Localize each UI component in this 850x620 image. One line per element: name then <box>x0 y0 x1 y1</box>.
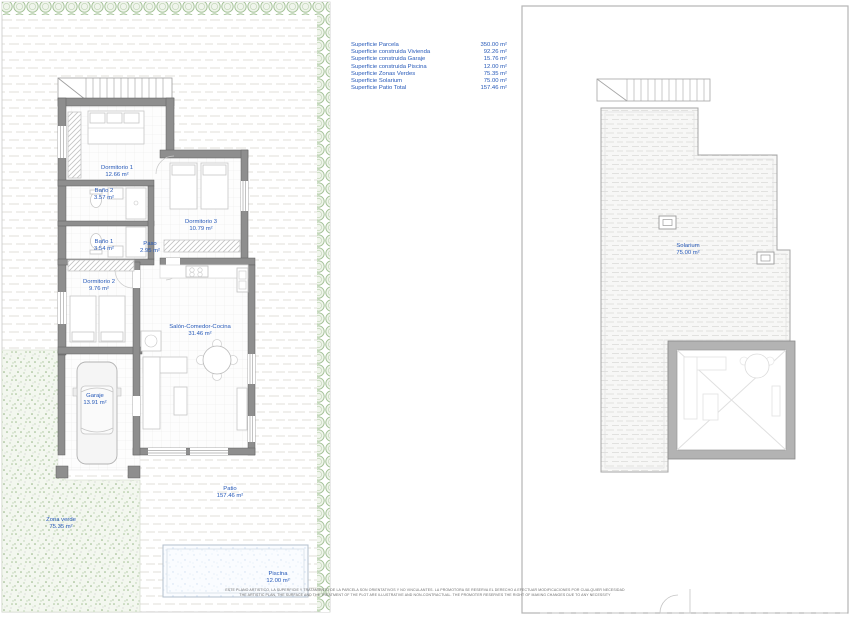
skylight <box>659 216 676 229</box>
legend-label: Superficie construida Garaje <box>351 56 457 63</box>
legend-value: 157.46 m² <box>457 85 507 92</box>
hedge-border-top <box>2 2 330 15</box>
legend-label: Superficie construida Vivienda <box>351 49 457 56</box>
legend-value: 75.35 m² <box>457 71 507 78</box>
legend-value: 12.00 m² <box>457 64 507 71</box>
roof-void-room <box>668 341 795 459</box>
skylight <box>757 252 774 264</box>
disclaimer-line-en: THE ARTISTIC PLAN, THE SURFACE AND THE T… <box>225 593 624 598</box>
legend-value: 75.00 m² <box>457 78 507 85</box>
site-plan <box>2 2 330 612</box>
entrance-stairs <box>58 78 172 100</box>
plan-drawing <box>0 0 850 620</box>
legend-label: Superficie Parcela <box>351 42 457 49</box>
roof-plan <box>522 6 848 613</box>
garage-car <box>73 362 121 464</box>
roof-stairs <box>597 79 710 101</box>
disclaimer: ESTE PLANO ARTISTICO, LA SUPERFICIE Y TR… <box>225 588 624 598</box>
floor-plan-sheet: Superficie Parcela350.00 m² Superficie c… <box>0 0 850 620</box>
legend-value: 92.26 m² <box>457 49 507 56</box>
legend-label: Superficie Patio Total <box>351 85 457 92</box>
legend-value: 15.76 m² <box>457 56 507 63</box>
legend-label: Superficie Zonas Verdes <box>351 71 457 78</box>
surface-legend: Superficie Parcela350.00 m² Superficie c… <box>351 42 507 92</box>
hedge-border-right <box>317 2 330 612</box>
legend-label: Superficie construida Piscina <box>351 64 457 71</box>
legend-value: 350.00 m² <box>457 42 507 49</box>
legend-label: Superficie Solarium <box>351 78 457 85</box>
